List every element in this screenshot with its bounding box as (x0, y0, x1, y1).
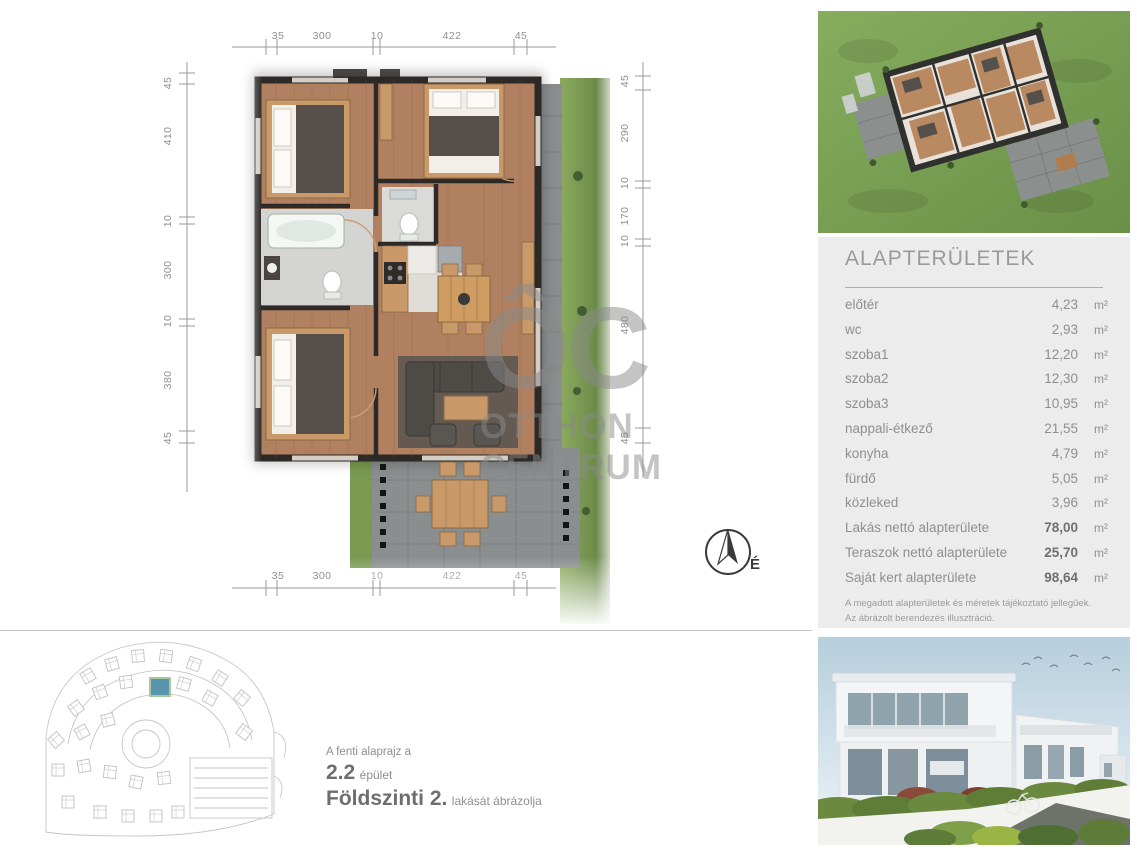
caption-floor-suffix: lakását ábrázolja (452, 794, 542, 808)
caption-floor: Földszinti 2. (326, 787, 447, 810)
table-row: fürdő 5,05 m² (845, 471, 1108, 496)
table-row: wc 2,93 m² (845, 322, 1108, 347)
table-row-total: Lakás nettó alapterülete 78,00 m² (845, 520, 1108, 545)
site-plan-illustration (28, 636, 290, 846)
site-plan-houses (48, 649, 253, 822)
table-row-total: Teraszok nettó alapterülete 25,70 m² (845, 545, 1108, 570)
divider-line (0, 630, 812, 631)
caption-building-word: épület (360, 768, 393, 782)
areas-title: ALAPTERÜLETEK (845, 247, 1035, 271)
table-row: szoba2 12,30 m² (845, 371, 1108, 396)
caption-building-number: 2.2 (326, 761, 355, 784)
caption-block: A fenti alaprajz a 2.2 épület Földszinti… (326, 746, 542, 813)
table-row: konyha 4,79 m² (845, 446, 1108, 471)
table-row: nappali-étkező 21,55 m² (845, 421, 1108, 446)
floorplan-sheet: 35 300 10 422 45 35 300 10 422 45 45 410… (0, 0, 1146, 851)
site-plan-highlighted-building (150, 678, 170, 696)
areas-rule (845, 287, 1103, 288)
dimension-lines (0, 0, 818, 628)
building-3d-render (818, 11, 1130, 233)
areas-panel: ALAPTERÜLETEK előtér 4,23 m² wc 2,93 m² … (818, 237, 1130, 628)
table-row: szoba3 10,95 m² (845, 396, 1108, 421)
photo-main-house (832, 673, 1016, 800)
table-row: közleked 3,96 m² (845, 495, 1108, 520)
table-row-total: Saját kert alapterülete 98,64 m² (845, 570, 1108, 595)
exterior-render-photo (818, 637, 1130, 845)
caption-intro: A fenti alaprajz a (326, 746, 542, 758)
areas-footnotes: A megadott alapterületek és méretek tájé… (845, 597, 1091, 626)
footnote-1: A megadott alapterületek és méretek tájé… (845, 597, 1091, 612)
table-row: szoba1 12,20 m² (845, 347, 1108, 372)
table-row: előtér 4,23 m² (845, 297, 1108, 322)
footnote-2: Az ábrázolt berendezés illusztráció. (845, 612, 1091, 627)
areas-table: előtér 4,23 m² wc 2,93 m² szoba1 12,20 m… (845, 297, 1108, 595)
